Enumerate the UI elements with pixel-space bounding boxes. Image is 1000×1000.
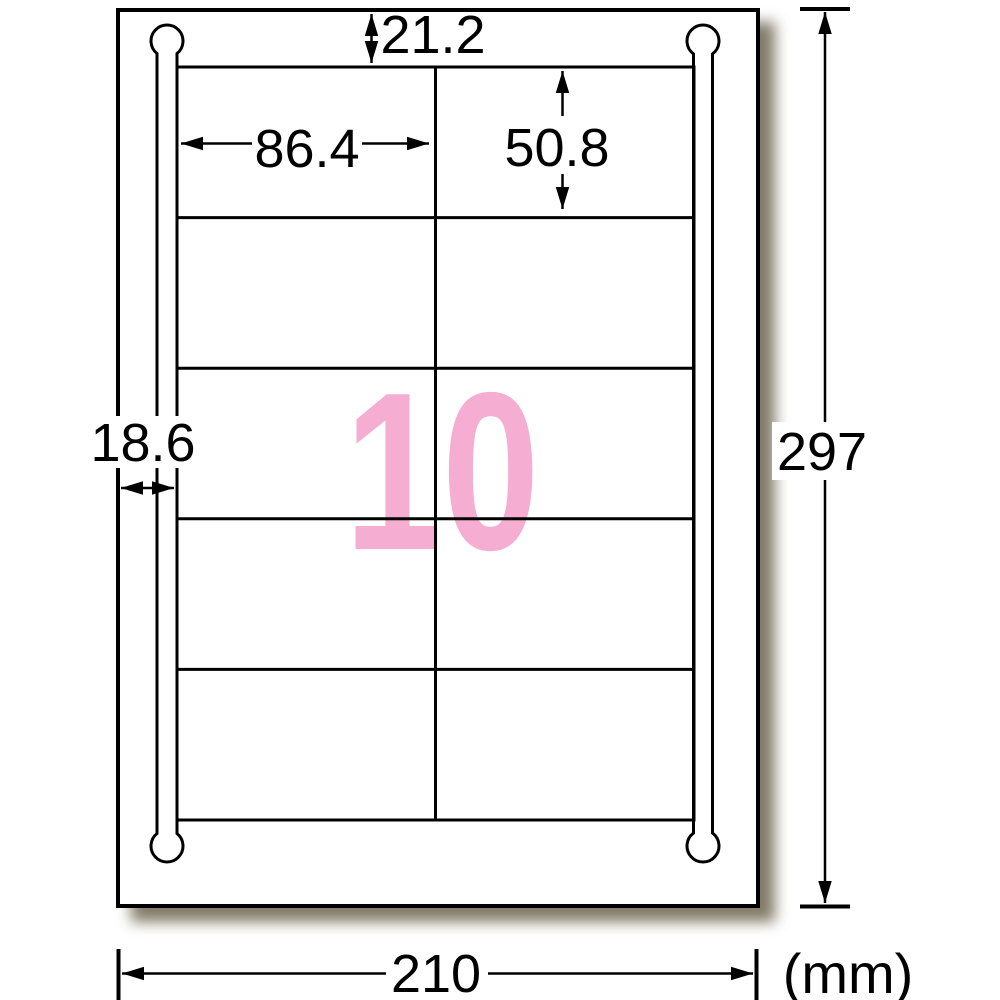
label-count: 10 bbox=[345, 345, 540, 597]
dim-label-width-value: 86.4 bbox=[254, 119, 359, 179]
dim-sheet-height: 297 bbox=[772, 9, 874, 907]
dim-top-margin: 21.2 bbox=[372, 5, 486, 65]
diagram-canvas: 10 21.2 86.4 50.8 18.6 297 bbox=[0, 0, 1000, 1000]
dim-sheet-height-value: 297 bbox=[777, 422, 867, 482]
dim-top-margin-value: 21.2 bbox=[380, 5, 485, 65]
dim-side-margin-value: 18.6 bbox=[90, 413, 195, 473]
dim-sheet-width: 210 bbox=[119, 944, 757, 1000]
unit-label: (mm) bbox=[783, 942, 914, 1000]
dim-label-height-value: 50.8 bbox=[504, 118, 609, 178]
dim-sheet-width-value: 210 bbox=[391, 944, 481, 1000]
